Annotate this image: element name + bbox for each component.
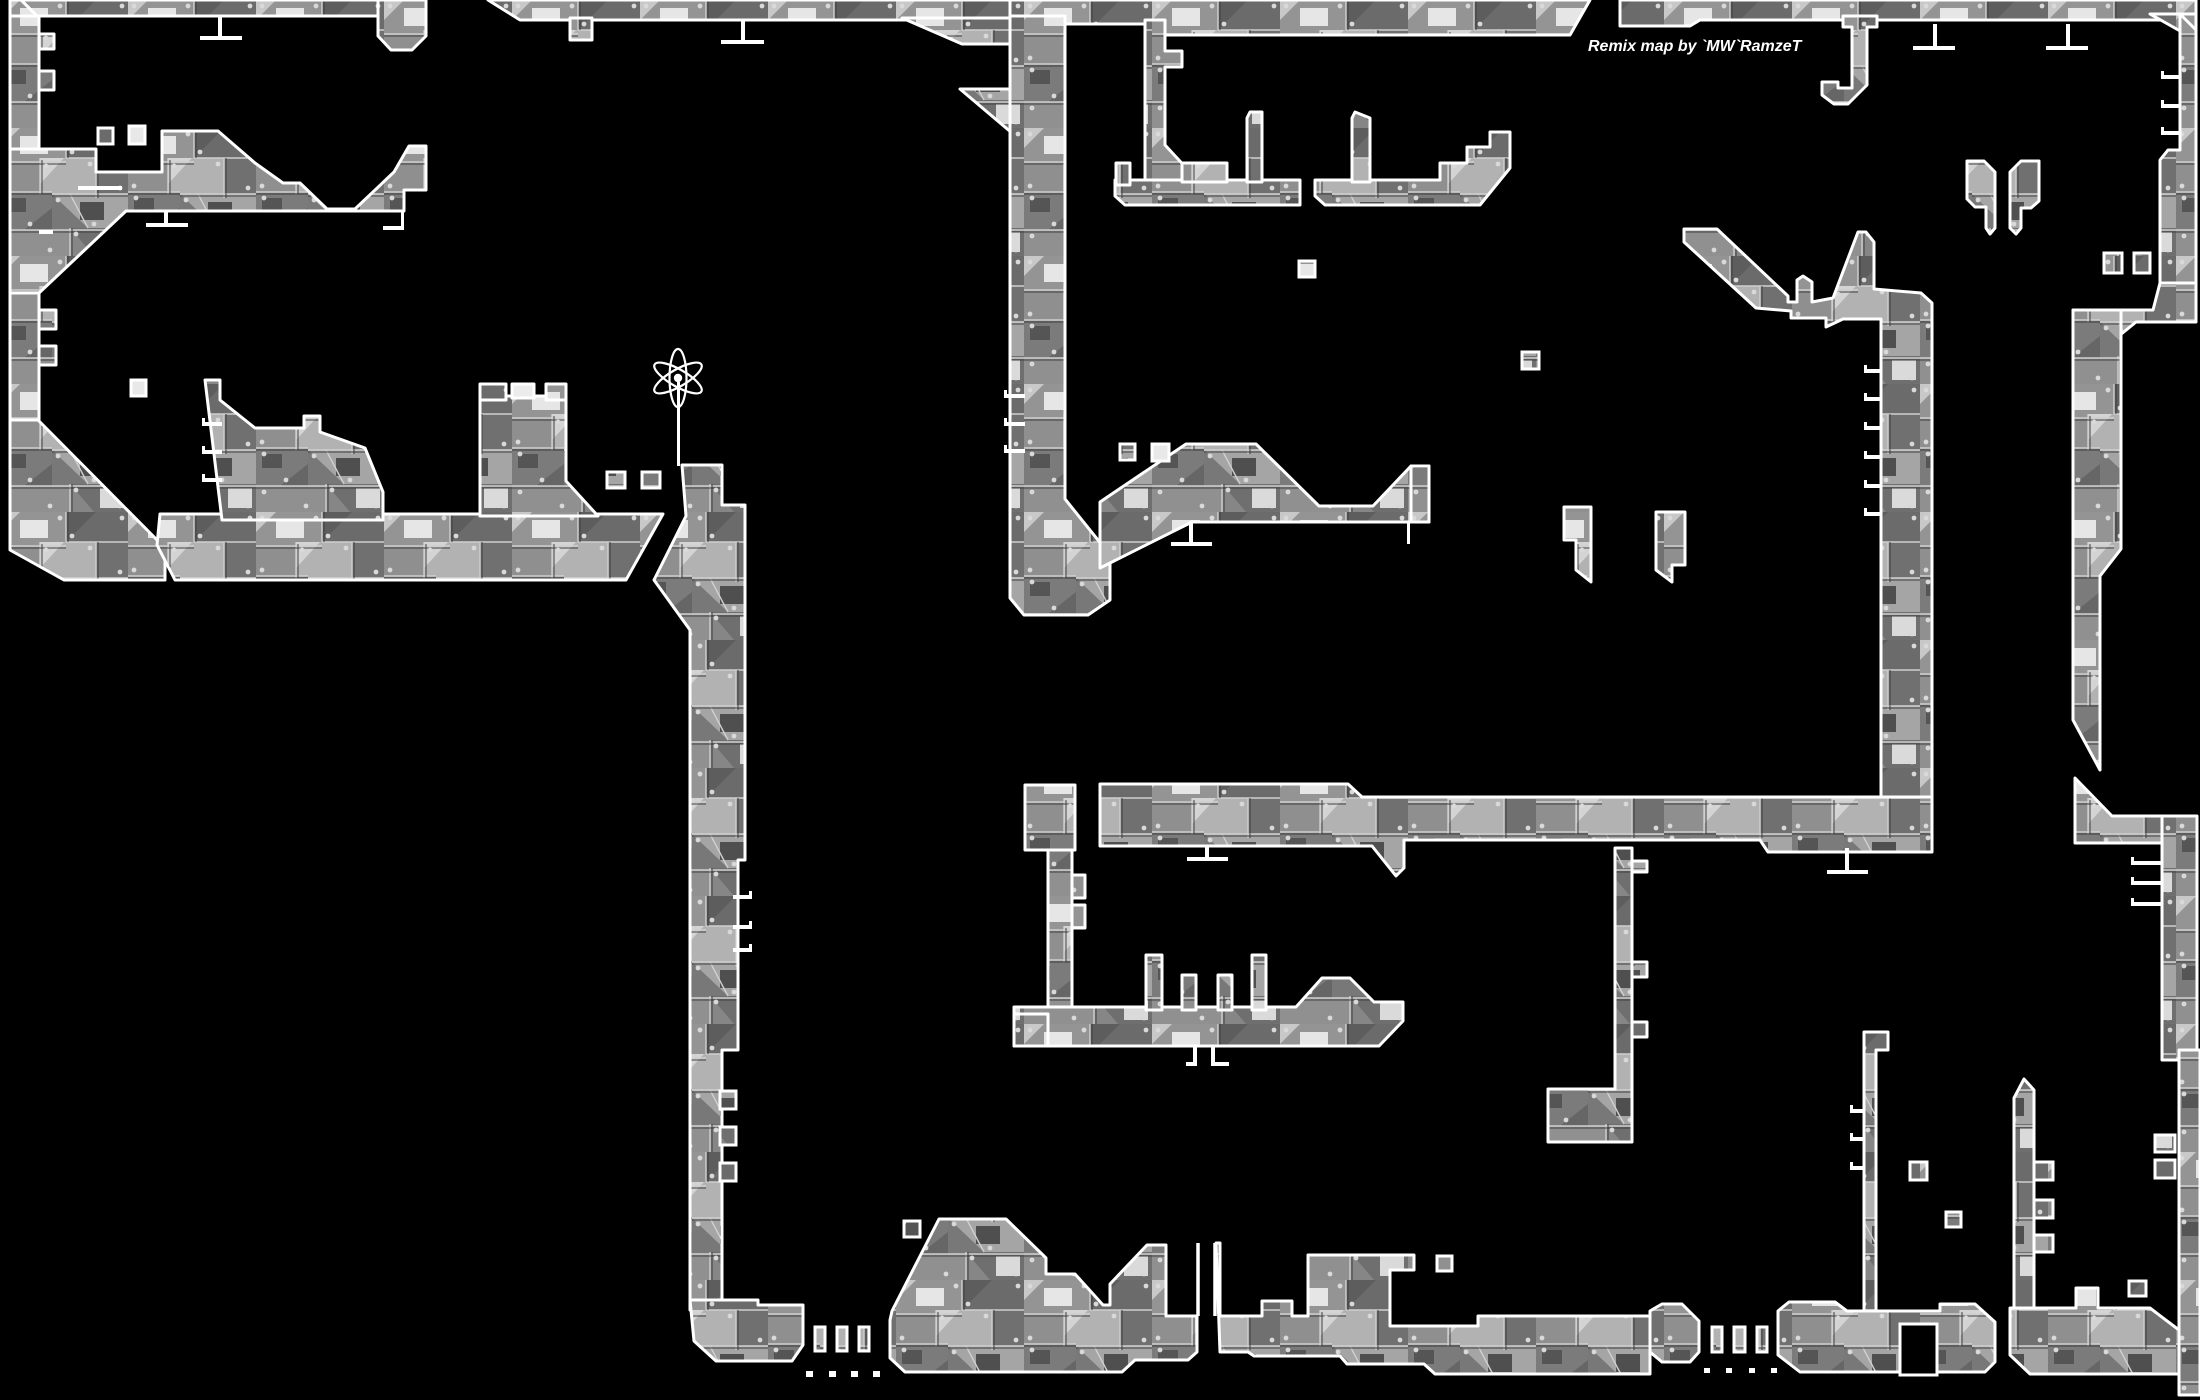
svg-text:Remix map by `MW`RamzeT: Remix map by `MW`RamzeT xyxy=(1588,38,1803,55)
